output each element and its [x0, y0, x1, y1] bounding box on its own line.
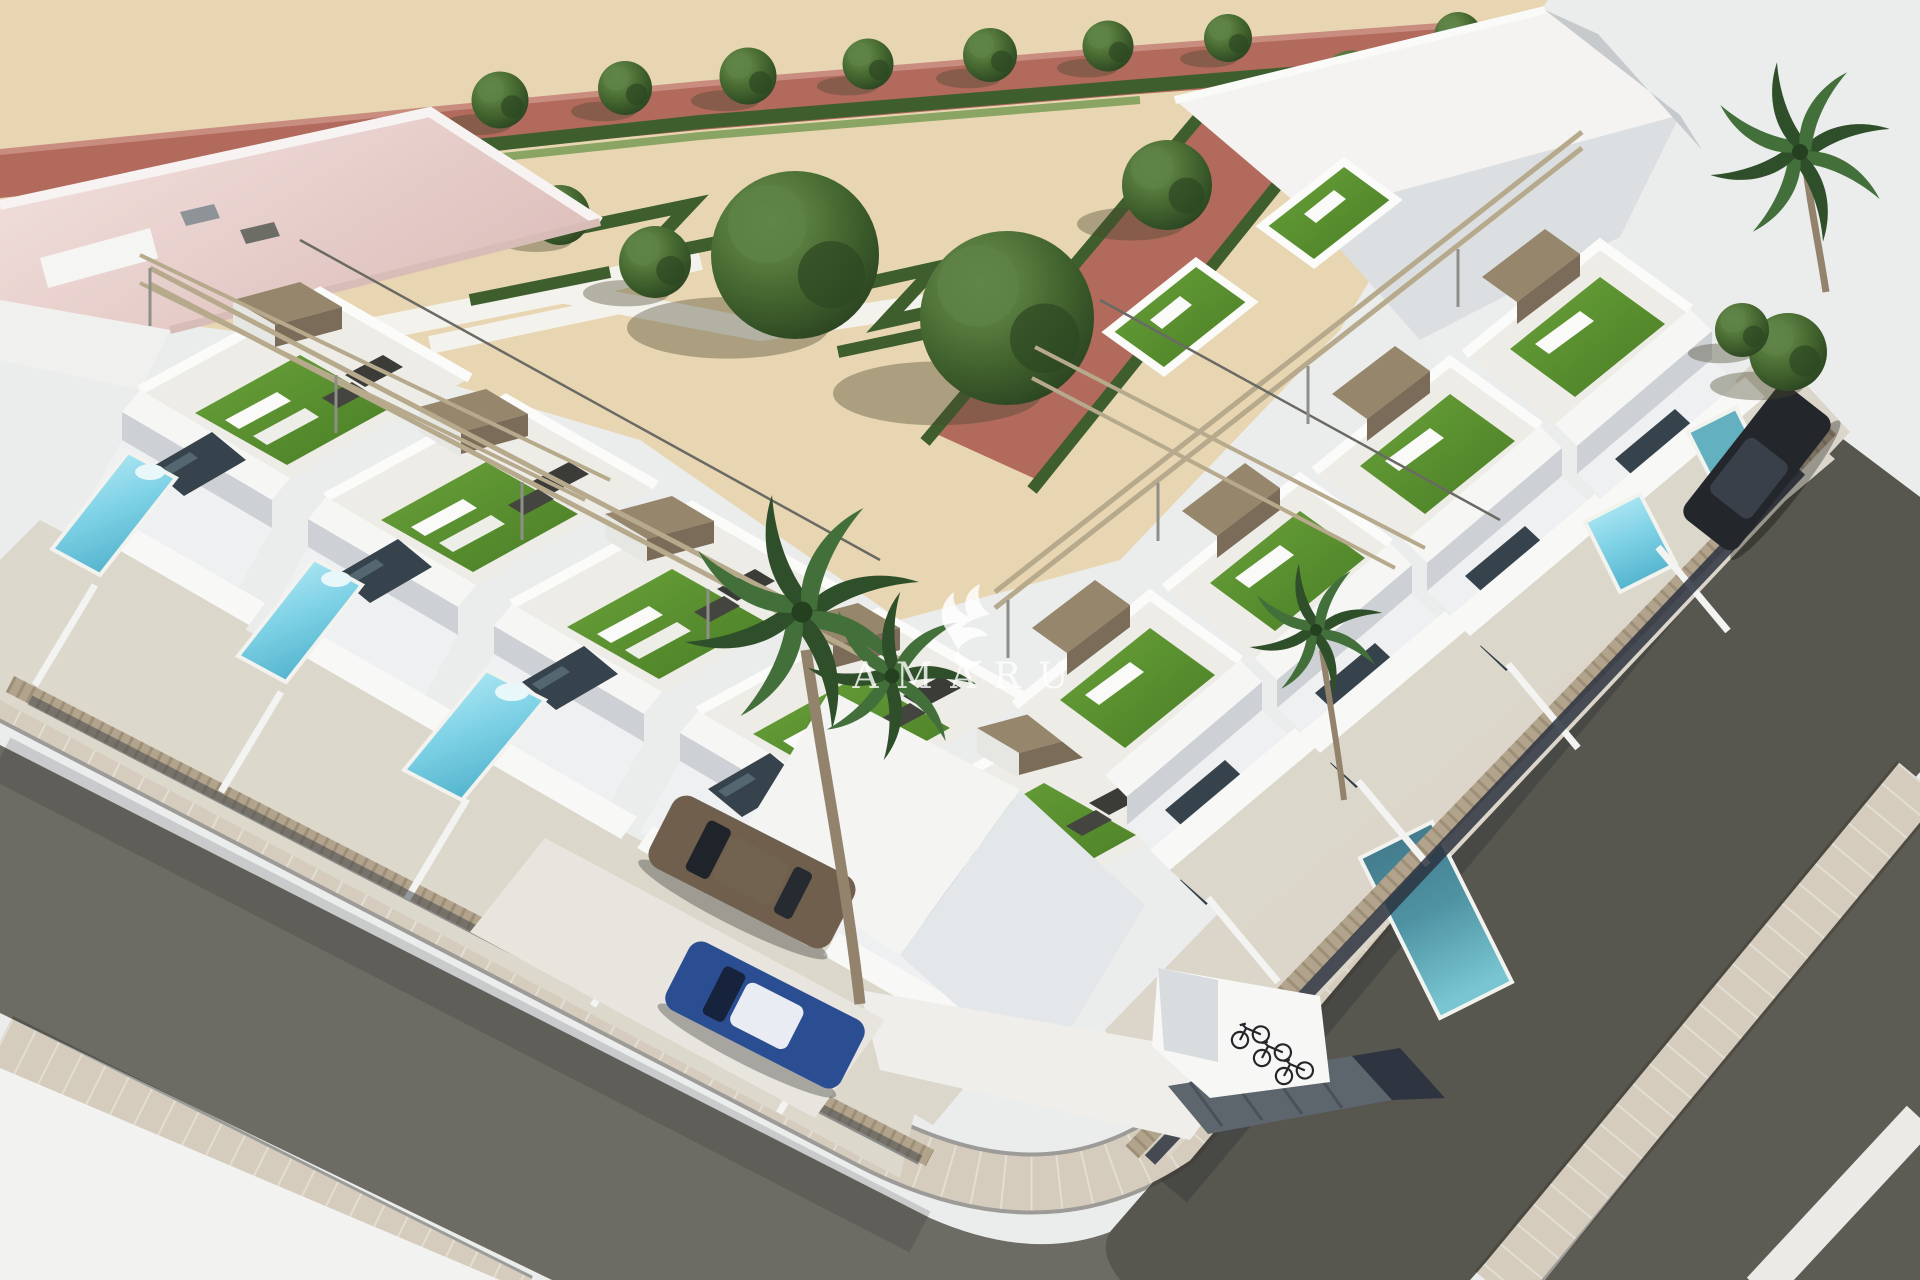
pool-steps	[321, 571, 351, 587]
watermark-text: A M A R U	[851, 656, 1071, 697]
pool-steps	[135, 464, 165, 480]
pool-steps	[495, 683, 529, 701]
aerial-render: A M A R U	[0, 0, 1920, 1280]
bike-shelter-shade	[1158, 968, 1218, 1062]
render-canvas: A M A R U	[0, 0, 1920, 1280]
